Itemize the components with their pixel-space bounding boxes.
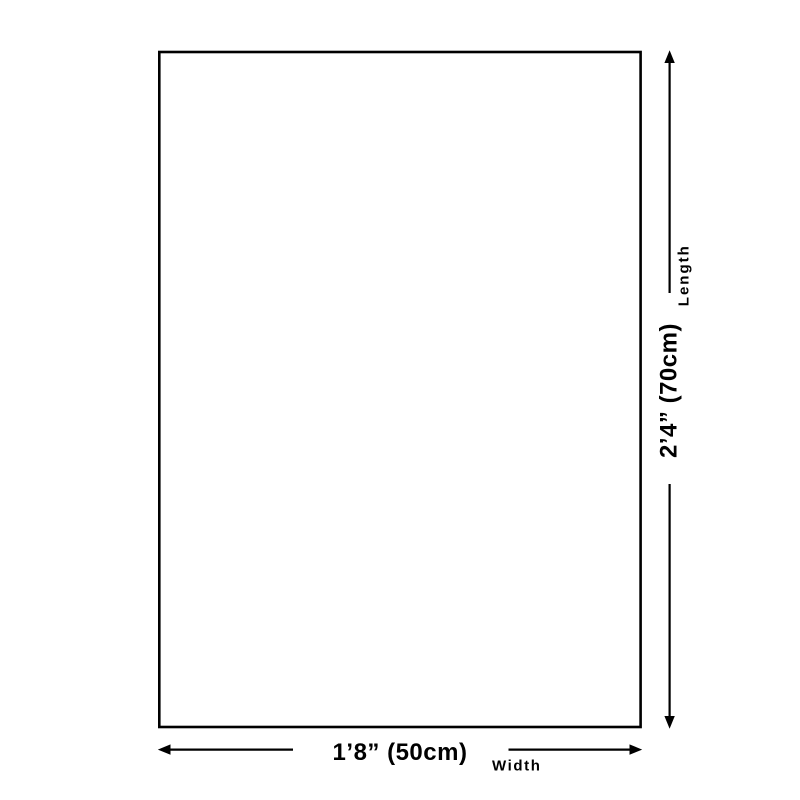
svg-text:2’4” (70cm): 2’4” (70cm): [656, 323, 683, 458]
svg-text:Length: Length: [676, 244, 693, 306]
svg-text:Width: Width: [492, 758, 542, 775]
svg-text:1’8” (50cm): 1’8” (50cm): [333, 739, 468, 766]
